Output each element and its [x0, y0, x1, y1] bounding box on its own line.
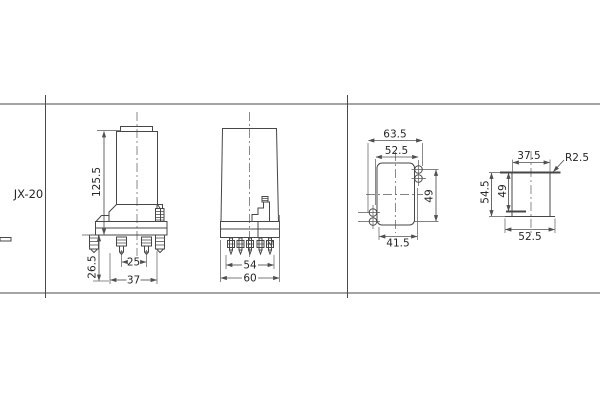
dim-label-side-width: 60: [243, 273, 256, 285]
dim-flush-inner-height: 49: [497, 173, 509, 211]
dim-front-pin-spacing: 25: [122, 250, 147, 269]
dim-label-front-pin-spacing: 25: [127, 257, 140, 269]
cutout-holes-top-right: [412, 160, 427, 186]
front-right-bolt: [156, 209, 165, 222]
dim-label-cutout-outer-width: 63.5: [383, 129, 406, 141]
dim-flush-corner-radius: R2.5: [554, 152, 590, 172]
dim-label-flush-outer-height: 54.5: [480, 180, 492, 203]
dim-label-flush-bottom-width: 52.5: [518, 231, 541, 243]
dim-cutout-lower-span: 41.5: [379, 188, 418, 250]
flush-mount-cutout-view: 37.5 R2.5 54.5 49 52.5: [480, 150, 590, 243]
side-terminal-pins: [228, 238, 274, 254]
drawing-sheet: JX-20: [0, 0, 600, 400]
dim-front-height: 125.5: [82, 131, 121, 236]
flush-opening: [505, 173, 555, 217]
dim-label-front-terminal-length: 26.5: [87, 255, 99, 278]
front-view: 125.5 26.5 25 37: [82, 112, 167, 287]
dim-label-front-base-span: 37: [127, 275, 140, 287]
front-left-stud: [90, 235, 99, 253]
dim-label-side-pin-row: 54: [243, 260, 257, 272]
dim-label-flush-corner-radius: R2.5: [565, 152, 589, 164]
front-right-stud: [156, 235, 165, 253]
dim-label-cutout-upper-span: 52.5: [385, 145, 408, 157]
dim-label-cutout-vertical-span: 49: [424, 189, 436, 202]
dim-cutout-upper-span: 52.5: [376, 145, 419, 205]
dim-cutout-vertical-span: 49: [412, 170, 439, 222]
dim-label-cutout-lower-span: 41.5: [386, 238, 409, 250]
panel-cutout-view: 63.5 52.5 49 41.5: [358, 129, 439, 250]
dim-side-pin-row: 54: [226, 255, 274, 272]
dim-label-front-height: 125.5: [91, 167, 103, 197]
dim-label-flush-top-width: 37.5: [517, 150, 540, 162]
front-top-cap: [121, 127, 153, 132]
dim-flush-bottom-width: 52.5: [505, 219, 555, 244]
model-label: JX-20: [13, 187, 43, 201]
dim-label-flush-inner-height: 49: [497, 184, 509, 197]
